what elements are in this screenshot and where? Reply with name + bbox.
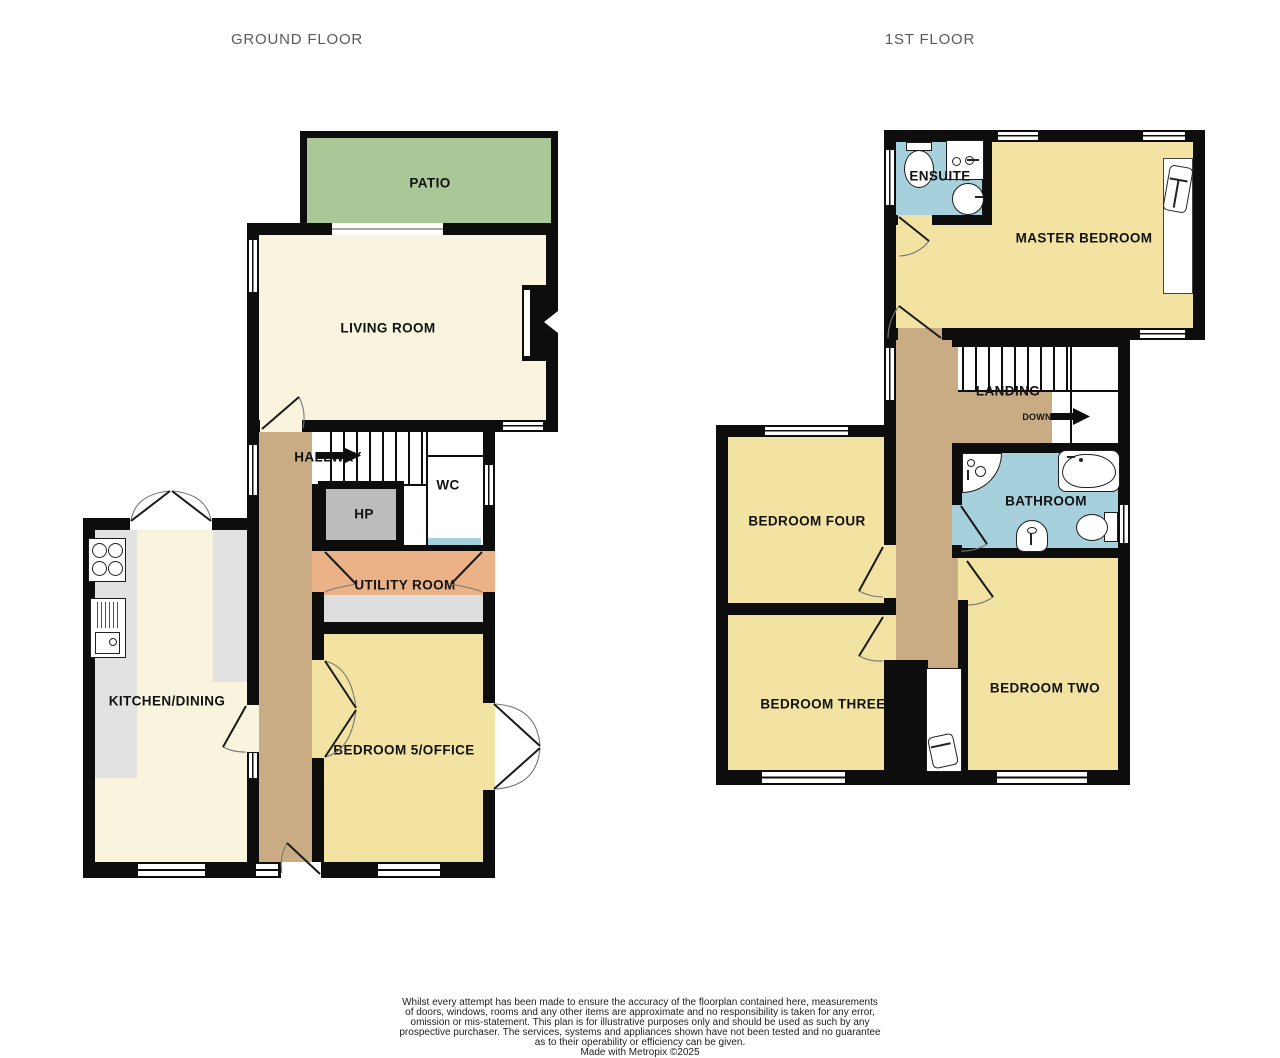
door-opening bbox=[260, 420, 302, 432]
window bbox=[1140, 328, 1185, 340]
wall bbox=[884, 660, 928, 785]
window bbox=[997, 770, 1087, 785]
fireplace-hearth bbox=[524, 290, 530, 356]
window bbox=[1118, 505, 1130, 543]
window bbox=[1143, 130, 1185, 142]
fireplace-notch bbox=[544, 311, 558, 333]
room-label-bedroom3: BEDROOM THREE bbox=[760, 697, 885, 712]
room-label-hp: HP bbox=[354, 507, 374, 522]
door-opening bbox=[884, 615, 896, 660]
stair-tread bbox=[369, 432, 371, 485]
wall bbox=[443, 223, 558, 235]
wall bbox=[952, 335, 1130, 347]
pedestal-basin-icon bbox=[1016, 520, 1048, 552]
door-opening bbox=[483, 703, 495, 790]
bed-icon bbox=[1163, 158, 1193, 294]
stair-tread bbox=[1053, 347, 1055, 390]
wall bbox=[312, 622, 495, 634]
wc-wall-line bbox=[426, 455, 483, 457]
kitchen-counter-right bbox=[213, 530, 247, 682]
wall bbox=[300, 131, 558, 138]
window bbox=[884, 150, 896, 205]
ground-floor-title: GROUND FLOOR bbox=[231, 31, 363, 48]
stair-tread bbox=[408, 432, 410, 485]
wall bbox=[483, 592, 495, 703]
wall bbox=[324, 545, 483, 551]
room-label-bedroom2: BEDROOM TWO bbox=[990, 681, 1100, 696]
room-label-landing: LANDING bbox=[976, 384, 1040, 399]
first-floor-title: 1ST FLOOR bbox=[885, 31, 975, 48]
wall bbox=[884, 328, 898, 340]
closet bbox=[926, 668, 962, 772]
door-opening bbox=[898, 328, 942, 340]
bath-icon bbox=[1058, 450, 1120, 492]
wall bbox=[884, 215, 898, 225]
room-label-bedroom5: BEDROOM 5/OFFICE bbox=[333, 743, 474, 758]
stair-tread bbox=[421, 432, 423, 485]
wall bbox=[300, 131, 307, 226]
window bbox=[503, 420, 543, 432]
room-label-bedroom4: BEDROOM FOUR bbox=[748, 514, 865, 529]
stair-tread bbox=[395, 432, 397, 485]
wall bbox=[1193, 130, 1205, 340]
wall bbox=[247, 223, 332, 235]
disclaimer: Whilst every attempt has been made to en… bbox=[340, 998, 940, 1058]
disclaimer-credit: Made with Metropix ©2025 bbox=[340, 1048, 940, 1058]
wall bbox=[884, 225, 896, 340]
room-label-bathroom: BATHROOM bbox=[1005, 494, 1087, 509]
wall bbox=[1118, 335, 1130, 785]
utility-counter bbox=[324, 595, 483, 622]
hob-icon bbox=[88, 538, 126, 582]
door-opening bbox=[958, 558, 968, 600]
door-opening bbox=[884, 545, 896, 598]
window bbox=[765, 425, 848, 437]
window bbox=[998, 130, 1038, 142]
window bbox=[378, 862, 440, 878]
room-label-utility: UTILITY ROOM bbox=[354, 578, 455, 593]
stair-tread bbox=[1066, 347, 1068, 390]
window bbox=[247, 445, 259, 495]
wall bbox=[716, 603, 884, 615]
patio-door-opening bbox=[332, 223, 443, 235]
room-label-ensuite: ENSUITE bbox=[909, 169, 970, 184]
door-opening bbox=[952, 505, 962, 545]
wall bbox=[302, 420, 503, 432]
door-opening bbox=[898, 215, 932, 225]
wall bbox=[247, 420, 260, 432]
toilet-bowl-icon bbox=[1076, 514, 1108, 541]
basin-icon bbox=[952, 183, 984, 215]
room-floor-bedroom2 bbox=[968, 558, 1118, 770]
label-down: DOWN bbox=[1022, 412, 1051, 422]
wall bbox=[543, 420, 558, 432]
room-label-master: MASTER BEDROOM bbox=[1016, 231, 1153, 246]
room-label-living: LIVING ROOM bbox=[340, 321, 435, 336]
wall bbox=[1038, 130, 1143, 142]
door-opening bbox=[483, 551, 495, 592]
wall bbox=[483, 790, 495, 866]
wall bbox=[551, 131, 558, 226]
wall bbox=[312, 758, 324, 862]
room-label-hallway: HALLWAY bbox=[294, 450, 362, 465]
stair-tread bbox=[382, 432, 384, 485]
stair-tread bbox=[1040, 347, 1042, 390]
room-label-kitchen: KITCHEN/DINING bbox=[109, 694, 226, 709]
window bbox=[256, 862, 278, 878]
window bbox=[247, 753, 259, 778]
wall bbox=[83, 518, 130, 530]
wall bbox=[1185, 328, 1205, 340]
wc-wall-line bbox=[426, 432, 428, 545]
window bbox=[247, 240, 259, 292]
floorplan-canvas: GROUND FLOOR 1ST FLOOR bbox=[0, 0, 1280, 1058]
wall bbox=[952, 443, 962, 505]
door-opening bbox=[312, 551, 324, 592]
sink-icon bbox=[90, 598, 126, 658]
window bbox=[884, 348, 896, 400]
front-door-opening bbox=[281, 862, 321, 878]
window bbox=[483, 465, 495, 505]
window bbox=[762, 770, 845, 785]
room-floor-hallway bbox=[259, 432, 312, 866]
stair-tread bbox=[962, 347, 964, 390]
wall bbox=[884, 425, 896, 545]
closet-icon bbox=[927, 733, 959, 770]
room-label-wc: WC bbox=[436, 478, 459, 493]
stair-edge-line bbox=[1070, 347, 1072, 443]
wall bbox=[884, 598, 896, 615]
wall bbox=[212, 518, 250, 530]
wc-threshold bbox=[428, 538, 481, 545]
room-label-patio: PATIO bbox=[409, 176, 450, 191]
window bbox=[138, 862, 205, 878]
room-floor-bedroom3 bbox=[728, 615, 884, 770]
door-opening bbox=[247, 705, 259, 752]
wall bbox=[312, 484, 324, 551]
room-floor-landing bbox=[896, 340, 958, 672]
door-opening bbox=[312, 660, 324, 758]
